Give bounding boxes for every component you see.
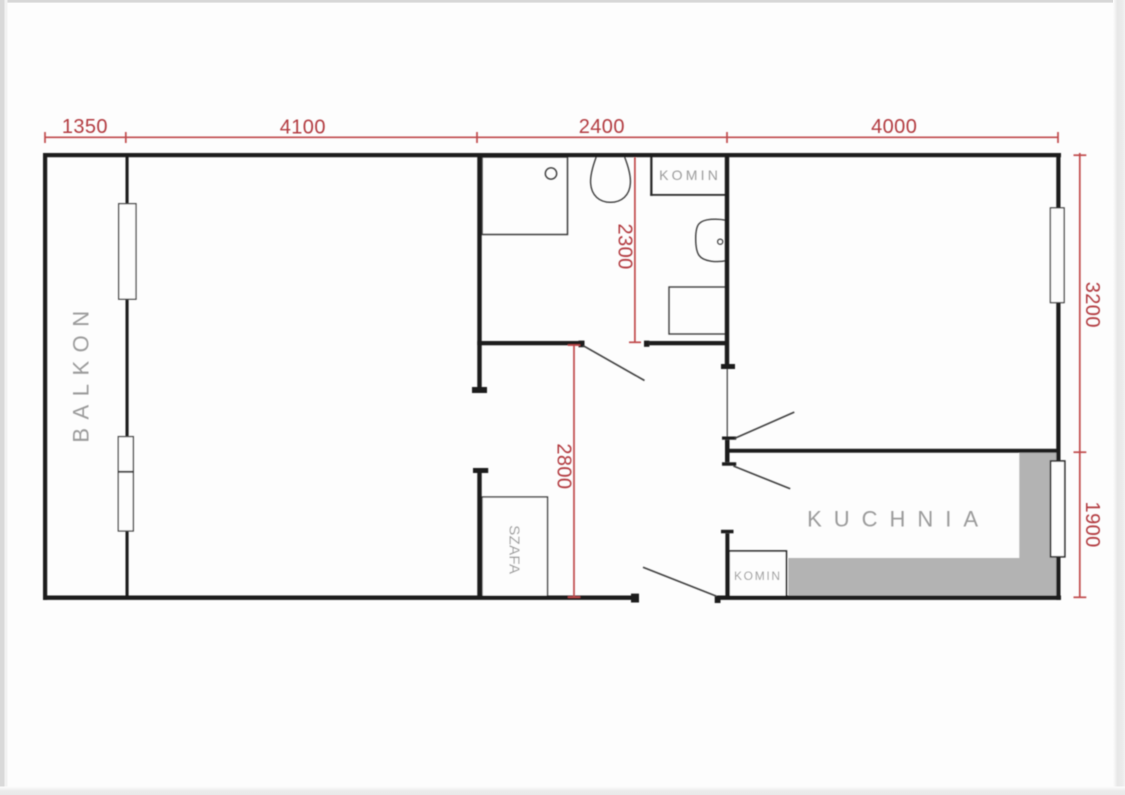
svg-text:4100: 4100 bbox=[280, 117, 326, 139]
svg-text:KUCHNIA: KUCHNIA bbox=[807, 507, 990, 532]
svg-text:2800: 2800 bbox=[552, 443, 574, 489]
svg-text:1900: 1900 bbox=[1081, 502, 1103, 548]
svg-text:BALKON: BALKON bbox=[69, 302, 94, 442]
svg-text:3200: 3200 bbox=[1081, 282, 1103, 328]
svg-text:2300: 2300 bbox=[614, 224, 636, 270]
svg-text:KOMIN: KOMIN bbox=[659, 167, 721, 183]
svg-text:4000: 4000 bbox=[871, 116, 917, 138]
svg-text:SZAFA: SZAFA bbox=[506, 525, 523, 574]
svg-text:2400: 2400 bbox=[579, 116, 625, 138]
svg-text:1350: 1350 bbox=[62, 116, 108, 138]
svg-text:KOMIN: KOMIN bbox=[734, 569, 782, 583]
